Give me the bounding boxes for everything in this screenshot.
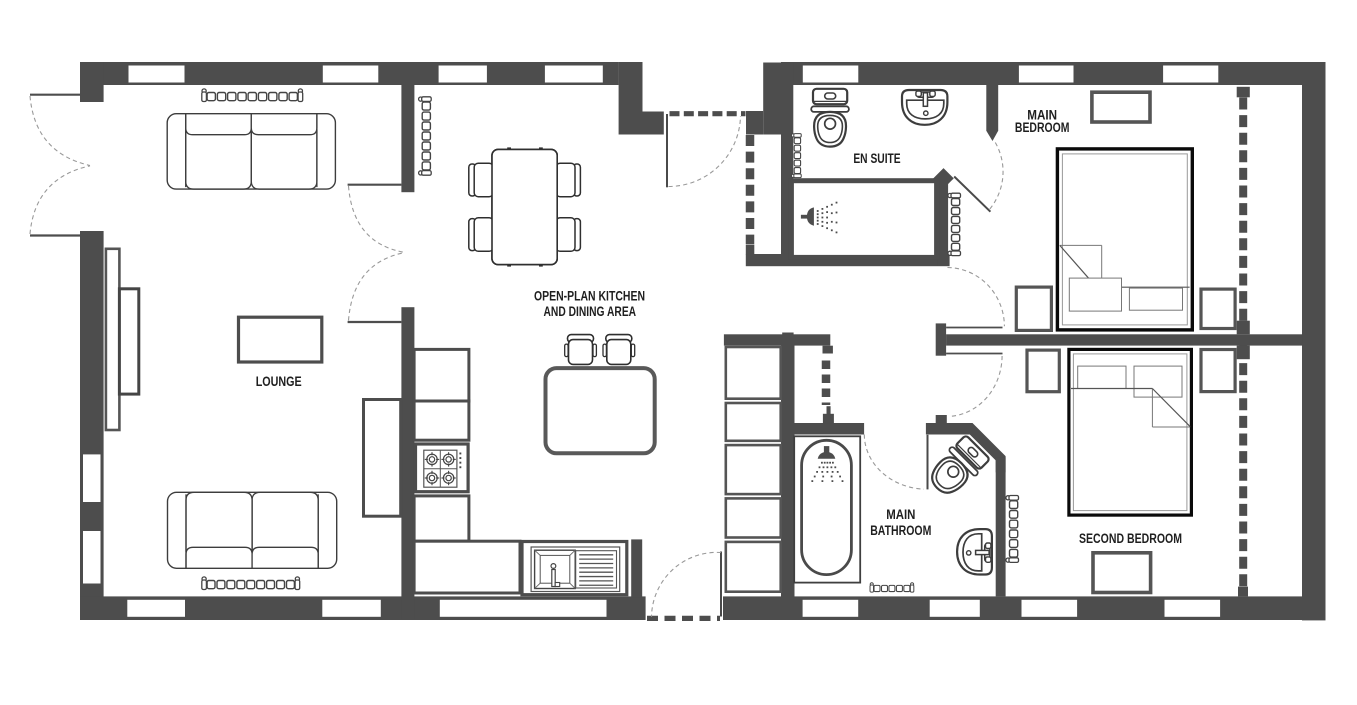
svg-text:BATHROOM: BATHROOM	[870, 522, 931, 538]
svg-text:EN SUITE: EN SUITE	[853, 150, 900, 166]
svg-text:MAIN: MAIN	[886, 506, 915, 522]
svg-text:OPEN-PLAN KITCHEN: OPEN-PLAN KITCHEN	[534, 287, 645, 303]
svg-text:BEDROOM: BEDROOM	[1015, 119, 1070, 135]
svg-text:SECOND BEDROOM: SECOND BEDROOM	[1079, 530, 1182, 546]
svg-text:AND DINING AREA: AND DINING AREA	[544, 303, 637, 319]
svg-text:LOUNGE: LOUNGE	[256, 373, 302, 389]
